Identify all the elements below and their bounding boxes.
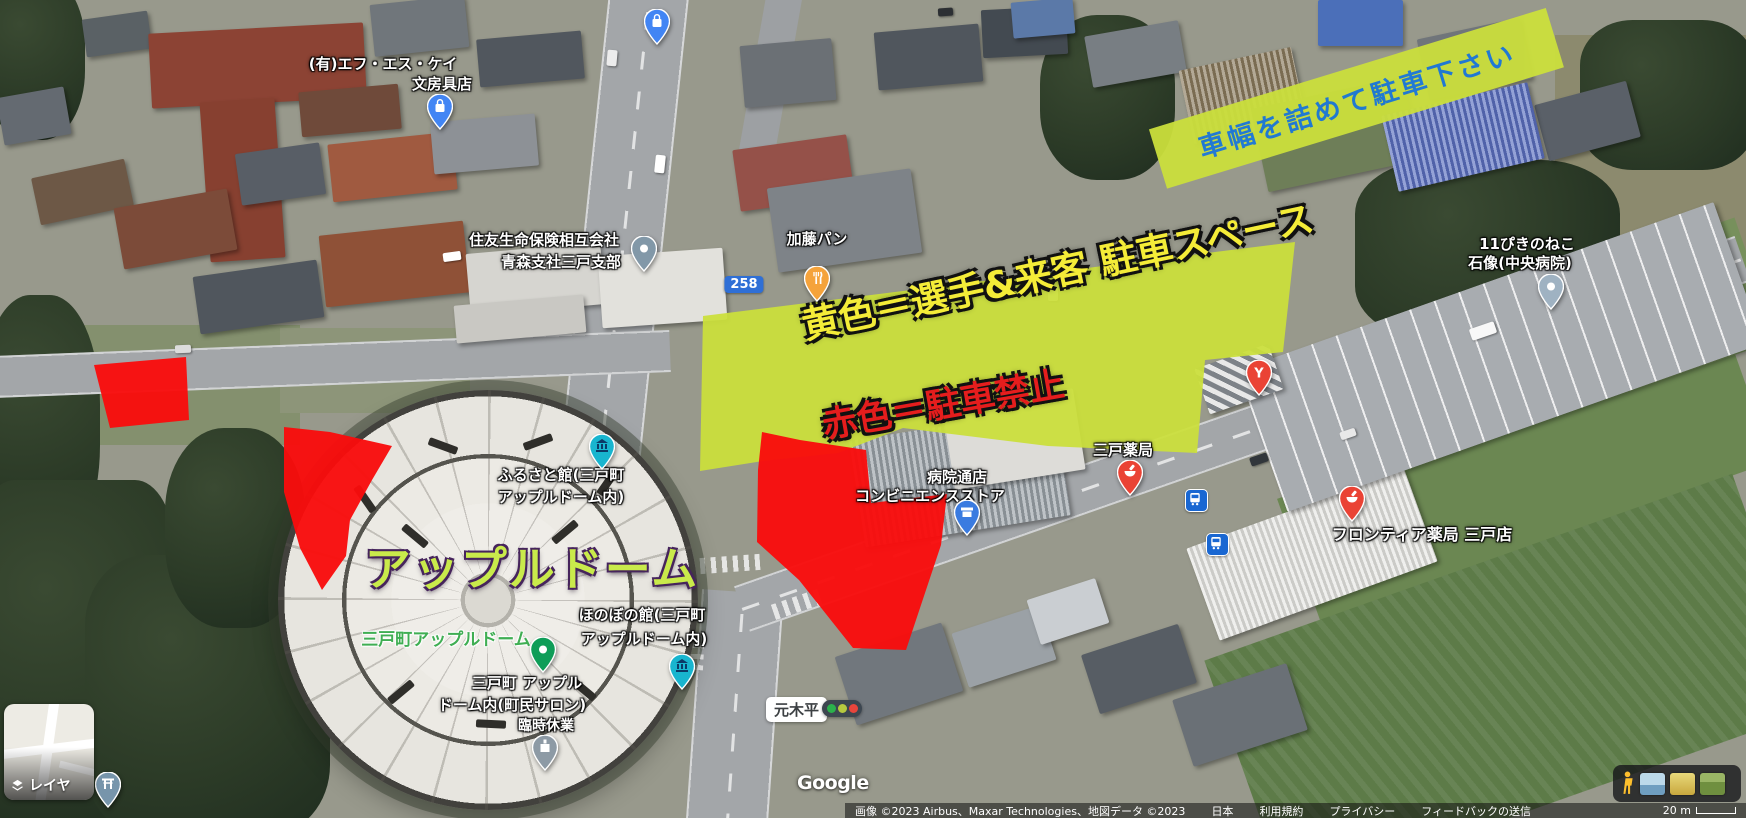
photo-thumbnail[interactable] (1640, 773, 1665, 795)
dot-icon (1547, 283, 1555, 291)
scale-label: 20 m (1663, 804, 1691, 817)
traffic-yellow-dot (838, 704, 847, 713)
building-roof (370, 0, 470, 57)
label-town-salon[interactable]: ドーム内(町民サロン) (438, 697, 586, 714)
label-stationery-store[interactable]: 文房具店 (412, 76, 472, 93)
bus-icon (1211, 537, 1220, 549)
label-kato-pan[interactable]: 加藤パン (787, 231, 848, 248)
store-pin-top[interactable] (644, 9, 670, 45)
layers-label: レイヤ (29, 775, 71, 795)
pegman-icon[interactable] (1620, 771, 1635, 796)
label-sannohe-apple-dome[interactable]: 三戸町アップルドーム (361, 631, 531, 651)
blue-roof (1011, 0, 1076, 39)
label-neko-statue[interactable]: 11ぴきのねこ (1479, 236, 1575, 253)
storefront-icon (961, 508, 973, 518)
stationery-store-pin[interactable] (427, 94, 453, 130)
roof-tick (476, 719, 506, 729)
label-honobono-hall[interactable]: アップルドーム内) (581, 631, 707, 648)
apple-dome-pin[interactable] (530, 637, 556, 673)
scale-bar (1696, 807, 1736, 814)
shrine-pin[interactable] (95, 772, 121, 808)
terms-link[interactable]: 利用規約 (1259, 803, 1303, 818)
vehicle (175, 345, 191, 354)
building-roof (739, 38, 836, 108)
honobono-hall-pin[interactable] (669, 654, 695, 690)
building-roof (1027, 578, 1110, 645)
building-roof (319, 221, 471, 308)
streetview-bar (1613, 765, 1741, 802)
bus-stop-icon[interactable] (1206, 533, 1229, 556)
y-glyph: Y (1253, 367, 1264, 382)
building-roof (476, 31, 585, 88)
label-temporarily-closed: 臨時休業 (518, 718, 574, 734)
traffic-green-dot (827, 704, 836, 713)
label-town-salon[interactable]: 三戸町 アップル (472, 675, 582, 692)
kato-pan-pin[interactable] (804, 266, 830, 302)
label-convenience-store[interactable]: 病院通店 (927, 469, 987, 486)
attribution-bar: 画像 ©2023 Airbus、Maxar Technologies、地図データ… (845, 803, 1746, 818)
building-roof (235, 142, 326, 205)
bus-stop-icon[interactable] (1185, 489, 1208, 512)
convenience-store-pin[interactable] (954, 500, 980, 536)
crosswalk (700, 554, 761, 574)
label-neko-statue[interactable]: 石像(中央病院) (1468, 255, 1572, 272)
label-sannohe-pharmacy[interactable]: 三戸薬局 (1093, 442, 1153, 459)
feedback-link[interactable]: フィードバックの送信 (1421, 803, 1531, 818)
shop-pin-y[interactable]: Y (1246, 360, 1272, 396)
bus-icon (1190, 493, 1199, 505)
google-logo[interactable]: Google (797, 772, 869, 794)
vehicle (938, 7, 954, 16)
region-label: 日本 (1211, 803, 1233, 818)
sannohe-pharmacy-pin[interactable] (1117, 460, 1143, 496)
vehicle (654, 155, 666, 174)
neko-statue-pin[interactable] (1538, 274, 1564, 310)
map-scale: 20 m (1663, 804, 1736, 817)
label-convenience-store[interactable]: コンビニエンスストア (855, 488, 1005, 505)
blue-tarp (1318, 0, 1403, 46)
vehicle (606, 50, 617, 67)
label-stationery-store[interactable]: (有)エフ・エス・ケイ (309, 56, 457, 73)
photo-thumbnail[interactable] (1700, 773, 1725, 795)
label-honobono-hall[interactable]: ほのぼの館(三戸町 (579, 607, 706, 624)
layers-icon (10, 778, 25, 793)
building-roof (0, 86, 72, 145)
label-frontier-pharmacy[interactable]: フロンティア薬局 三戸店 (1332, 526, 1513, 544)
imagery-credit: 画像 ©2023 Airbus、Maxar Technologies、地図データ… (855, 803, 1185, 818)
dome-title-text: アップルドーム (365, 533, 700, 599)
town-salon-pin[interactable] (532, 735, 558, 771)
label-sumitomo[interactable]: 青森支社三戸支部 (501, 254, 621, 271)
dot-icon (539, 646, 547, 654)
privacy-link[interactable]: プライバシー (1329, 803, 1395, 818)
sumitomo-pin[interactable] (631, 236, 657, 272)
traffic-light-icon (822, 700, 862, 717)
satellite-map[interactable]: 車幅を詰めて駐車下さい 黄色＝選手&来客 駐車スペース 赤色＝駐車禁止 アップル… (0, 0, 1746, 818)
label-sumitomo[interactable]: 住友生命保険相互会社 (469, 232, 619, 249)
label-motokidaira[interactable]: 元木平 (766, 697, 827, 722)
layers-control[interactable]: レイヤ (4, 704, 94, 800)
road-center-line (725, 592, 745, 818)
label-furusato-hall[interactable]: アップルドーム内) (498, 489, 624, 506)
building-roof (298, 84, 402, 138)
building-roof (82, 11, 153, 58)
dot-icon (640, 245, 648, 253)
traffic-red-dot (849, 704, 858, 713)
route-258-badge: 258 (724, 276, 763, 293)
frontier-pharmacy-pin[interactable] (1339, 486, 1365, 522)
photo-thumbnail[interactable] (1670, 773, 1695, 795)
building-roof (874, 24, 984, 91)
building-roof (193, 260, 325, 335)
furusato-hall-pin[interactable] (589, 434, 615, 470)
